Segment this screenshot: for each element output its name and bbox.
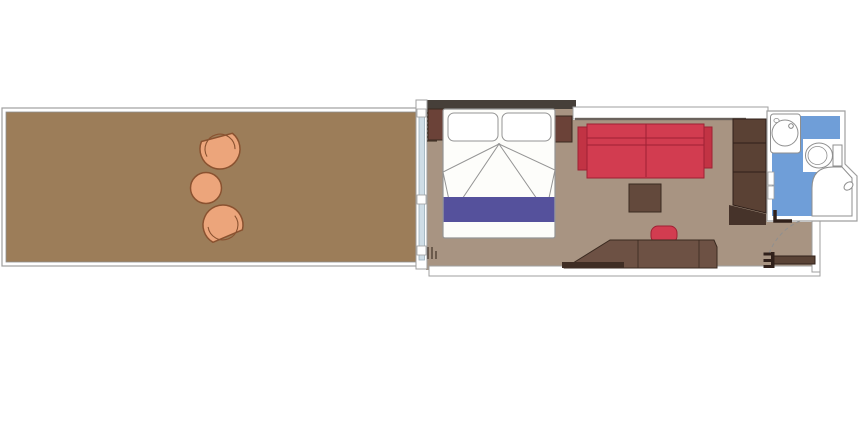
sitting-area-top-wall xyxy=(573,107,768,119)
nightstand-right xyxy=(553,116,572,142)
window-mullion-middle xyxy=(417,195,426,204)
bathroom-shelf-2 xyxy=(768,186,774,199)
bed-runner xyxy=(444,197,555,222)
desk-ledge xyxy=(562,262,624,268)
entry-door xyxy=(772,256,815,264)
toilet-tank xyxy=(833,145,842,166)
bedroom-top-wall xyxy=(416,100,576,109)
window-mullion-top xyxy=(417,109,426,117)
pillow-right xyxy=(502,113,551,141)
window-mullion-bottom xyxy=(417,246,426,255)
entry-door-hinge-prong-top xyxy=(764,253,773,256)
balcony-table xyxy=(191,173,222,204)
sink-basin xyxy=(772,120,798,146)
pillow-left xyxy=(448,113,498,141)
coffee-table xyxy=(629,184,661,212)
shower-pan xyxy=(812,167,852,216)
bathroom-shelf-1 xyxy=(768,172,774,185)
floor-plan-canvas xyxy=(0,0,866,426)
entry-door-hinge-prong-bottom xyxy=(764,265,773,268)
sitting-area-top-wall-line xyxy=(575,118,746,120)
window-glass xyxy=(419,112,425,260)
entry-door-hinge-prong-mid xyxy=(764,259,773,262)
floor-plan-svg xyxy=(0,0,866,426)
sink-faucet xyxy=(789,124,794,129)
sink-soap-dish xyxy=(774,119,779,123)
wardrobe xyxy=(733,119,766,213)
